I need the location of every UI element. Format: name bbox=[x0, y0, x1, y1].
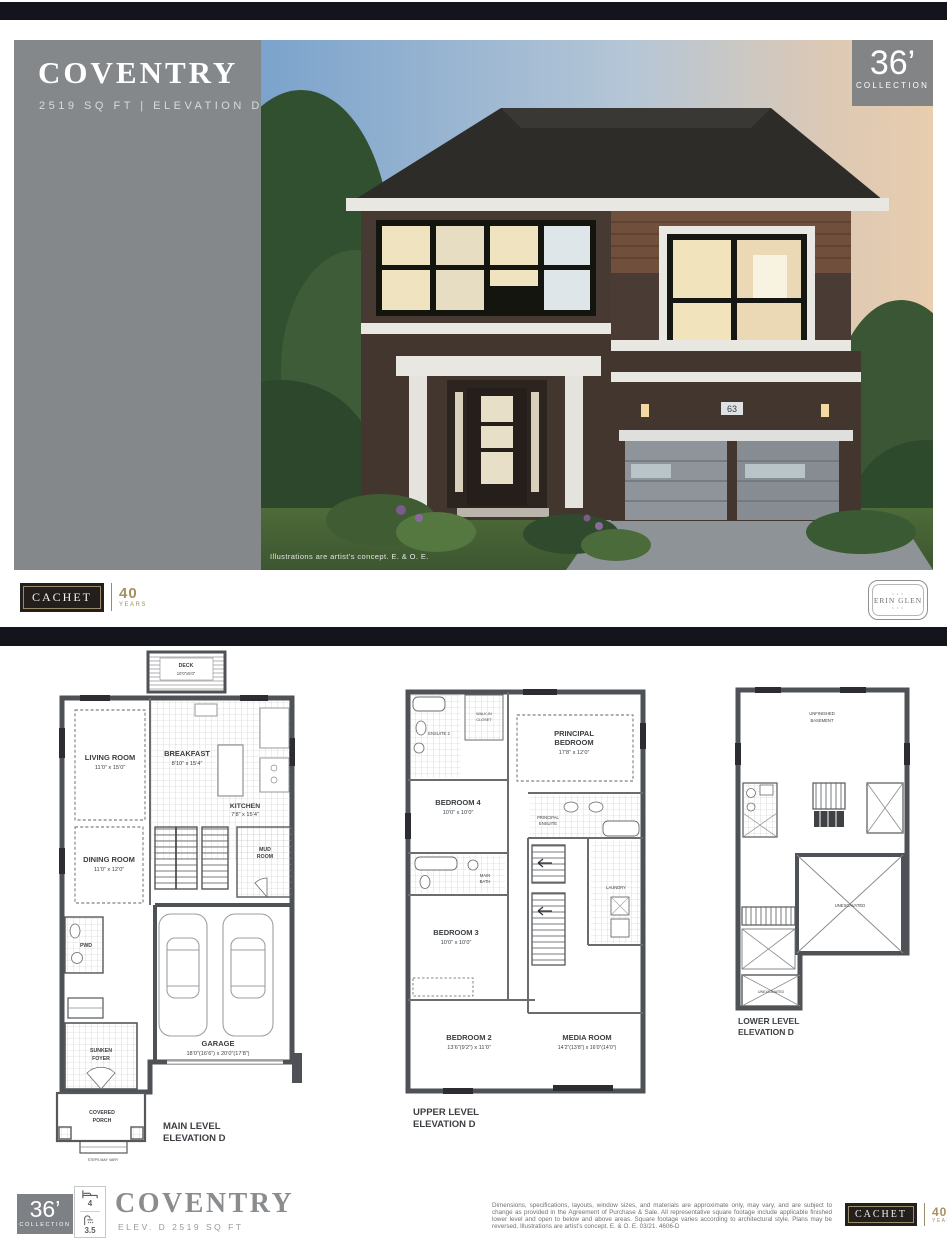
upper-level-plan: PRINCIPAL BEDROOM 17’8” x 12’0” ENSUITE … bbox=[403, 683, 648, 1143]
garage-sconce-right bbox=[821, 404, 829, 417]
foyer-label-2: FOYER bbox=[92, 1056, 110, 1062]
image-caption: Illustrations are artist’s concept. E. &… bbox=[270, 552, 429, 561]
garage: 63 bbox=[611, 351, 861, 521]
deck-dims: 10’0”x5’0” bbox=[177, 671, 196, 676]
lower-outer-walls bbox=[738, 690, 907, 1008]
cachet-wordmark-box: CACHET bbox=[20, 583, 104, 612]
cachet-logo-top: CACHET 40 YEARS bbox=[20, 583, 147, 611]
shower-icon bbox=[82, 1215, 98, 1226]
front-door bbox=[455, 388, 539, 506]
kitchen-label: KITCHEN bbox=[230, 803, 260, 810]
collection-badge-label: COLLECTION bbox=[852, 81, 933, 90]
sunken-foyer: SUNKEN FOYER bbox=[65, 1023, 137, 1089]
lower-level-plan: UNFINISHED BASEMENT UNEXCAVATED UNEXCAVA… bbox=[730, 683, 930, 1043]
ensuite2-label: ENSUITE 2 bbox=[428, 731, 450, 736]
model-subtitle: 2519 SQ FT | ELEVATION D bbox=[39, 100, 263, 112]
mud-room: MUD ROOM bbox=[237, 827, 292, 897]
erin-glen-badge: • • • ERIN GLEN • • • bbox=[868, 580, 928, 620]
covered-porch: COVERED PORCH STEPS MAY VARY bbox=[57, 1093, 145, 1162]
mud-room-label-2: ROOM bbox=[257, 854, 273, 860]
footer-stats-box: 4 3.5 bbox=[74, 1186, 106, 1238]
living-room-dims: 11’0” x 15’0” bbox=[95, 765, 126, 771]
porch-label-2: PORCH bbox=[93, 1118, 112, 1124]
bedroom2-dims: 13’6”(9’2”) x 11’0” bbox=[447, 1045, 491, 1051]
basement-label-1: UNFINISHED bbox=[809, 711, 835, 716]
hero-title-panel bbox=[14, 40, 261, 570]
bedroom3-dims: 10’0” x 10’0” bbox=[441, 940, 472, 946]
bed-icon bbox=[81, 1189, 99, 1199]
beds-count: 4 bbox=[88, 1200, 92, 1208]
legal-disclaimer: Dimensions, specifications, layouts, win… bbox=[492, 1203, 832, 1231]
ensuite-2: ENSUITE 2 bbox=[411, 695, 461, 778]
lower-level-title-2: ELEVATION D bbox=[738, 1027, 794, 1037]
cachet-years: 40 YEARS bbox=[119, 586, 147, 608]
house: 63 bbox=[346, 108, 889, 521]
powder-room: PWD bbox=[65, 917, 103, 973]
erin-glen-name: ERIN GLEN bbox=[874, 596, 922, 605]
mud-room-label-1: MUD bbox=[259, 847, 271, 853]
house-number: 63 bbox=[727, 404, 737, 414]
deck-label: DECK bbox=[179, 663, 194, 669]
cachet-years: 40 YEARS bbox=[932, 1206, 947, 1224]
laundry-label: LAUNDRY bbox=[606, 885, 626, 890]
walk-in-closet: WALK-IN CLOSET bbox=[465, 695, 503, 740]
years-label: YEARS bbox=[932, 1219, 947, 1224]
main-bath-label-2: BATH bbox=[480, 879, 491, 884]
bedroom2-label: BEDROOM 2 bbox=[446, 1033, 491, 1042]
main-level-title-2: ELEVATION D bbox=[163, 1133, 226, 1144]
stats-divider bbox=[80, 1211, 100, 1212]
principal-ensuite-label-1: PRINCIPAL bbox=[537, 815, 559, 820]
bedroom4-dims: 10’0” x 10’0” bbox=[443, 810, 474, 816]
garage-pillar bbox=[292, 1053, 302, 1083]
foyer-label-1: SUNKEN bbox=[90, 1048, 112, 1054]
cachet-wordmark: CACHET bbox=[23, 586, 101, 609]
upper-level-title-2: ELEVATION D bbox=[413, 1119, 476, 1130]
porch-label-1: COVERED bbox=[89, 1110, 115, 1116]
footer-badge-label: COLLECTION bbox=[17, 1222, 73, 1228]
unexcavated-main: UNEXCAVATED bbox=[797, 855, 903, 953]
principal-ensuite: PRINCIPAL ENSUITE bbox=[530, 795, 641, 837]
cachet-divider bbox=[111, 583, 112, 611]
living-room-label: LIVING ROOM bbox=[85, 753, 135, 762]
collection-badge-size: 36’ bbox=[852, 43, 933, 83]
baths-count: 3.5 bbox=[84, 1227, 95, 1235]
house-rendering: 63 bbox=[261, 40, 933, 570]
lower-level-title-1: LOWER LEVEL bbox=[738, 1016, 799, 1026]
years-value: 40 bbox=[932, 1206, 947, 1218]
stairs-upper bbox=[532, 845, 565, 965]
wic-label-1: WALK-IN bbox=[476, 712, 492, 716]
principal-dims: 17’8” x 12’0” bbox=[559, 750, 590, 756]
garage-sconce-left bbox=[641, 404, 649, 417]
section-divider-bar bbox=[0, 627, 947, 646]
bedroom3-label: BEDROOM 3 bbox=[433, 928, 478, 937]
front-porch bbox=[396, 356, 601, 517]
main-bath-label-1: MAIN bbox=[480, 873, 490, 878]
footer-model-name: COVENTRY bbox=[115, 1188, 294, 1220]
upper-level-title-1: UPPER LEVEL bbox=[413, 1107, 479, 1118]
garage-label: GARAGE bbox=[202, 1039, 235, 1048]
upper-left-windows bbox=[376, 220, 596, 316]
basement-bath-roughin bbox=[743, 783, 777, 837]
kitchen-dims: 7’8” x 15’4” bbox=[231, 812, 259, 818]
years-label: YEARS bbox=[119, 602, 147, 608]
cachet-wordmark-box: CACHET bbox=[845, 1203, 917, 1226]
principal-label-1: PRINCIPAL bbox=[554, 729, 594, 738]
dining-room-label: DINING ROOM bbox=[83, 855, 135, 864]
main-level-plan: DECK 10’0”x5’0” LIVING ROOM 11’0” x 15’0… bbox=[55, 648, 305, 1165]
media-room-dims: 14’2”(13’8”) x 16’0”(14’0”) bbox=[558, 1045, 617, 1051]
top-divider-bar bbox=[0, 2, 947, 20]
principal-label-2: BEDROOM bbox=[554, 738, 593, 747]
stairs-lower bbox=[813, 783, 845, 827]
brochure-page: { "hero": { "model_name": "COVENTRY", "s… bbox=[0, 0, 947, 1251]
laundry: LAUNDRY bbox=[591, 841, 641, 943]
collection-badge: 36’ COLLECTION bbox=[852, 40, 933, 106]
unexcavated-label-2: UNEXCAVATED bbox=[758, 990, 785, 994]
erin-glen-ornament-bottom: • • • bbox=[892, 605, 903, 610]
pwd-label: PWD bbox=[80, 943, 92, 949]
model-title: COVENTRY bbox=[38, 55, 238, 91]
erin-glen-frame: • • • ERIN GLEN • • • bbox=[872, 584, 924, 616]
footer-model-subtitle: ELEV. D 2519 SQ FT bbox=[118, 1222, 243, 1232]
main-level-title-1: MAIN LEVEL bbox=[163, 1121, 221, 1132]
breakfast-label: BREAKFAST bbox=[164, 749, 210, 758]
deck: DECK 10’0”x5’0” bbox=[148, 652, 225, 692]
footer-badge-size: 36’ bbox=[17, 1196, 73, 1222]
unexcavated-label-1: UNEXCAVATED bbox=[835, 903, 865, 908]
footer-collection-badge: 36’ COLLECTION bbox=[17, 1194, 73, 1234]
wic-label-2: CLOSET bbox=[476, 718, 492, 722]
breakfast-dims: 8’10” x 15’4” bbox=[172, 761, 203, 767]
years-value: 40 bbox=[119, 586, 147, 601]
principal-ensuite-label-2: ENSUITE bbox=[539, 821, 557, 826]
bedroom4-label: BEDROOM 4 bbox=[435, 798, 481, 807]
basement-label-2: BASEMENT bbox=[810, 718, 833, 723]
cachet-divider bbox=[924, 1203, 925, 1226]
dining-room-dims: 11’0” x 12’0” bbox=[94, 867, 125, 873]
cachet-wordmark: CACHET bbox=[848, 1206, 914, 1223]
cachet-logo-bottom: CACHET 40 YEARS bbox=[845, 1203, 947, 1226]
steps-note: STEPS MAY VARY bbox=[88, 1158, 119, 1162]
main-bath: MAIN BATH bbox=[411, 855, 505, 893]
stairs-main bbox=[155, 827, 228, 889]
garage-dims: 18’0”(16’6”) x 20’0”(17’8”) bbox=[186, 1051, 249, 1057]
media-room-label: MEDIA ROOM bbox=[562, 1033, 611, 1042]
